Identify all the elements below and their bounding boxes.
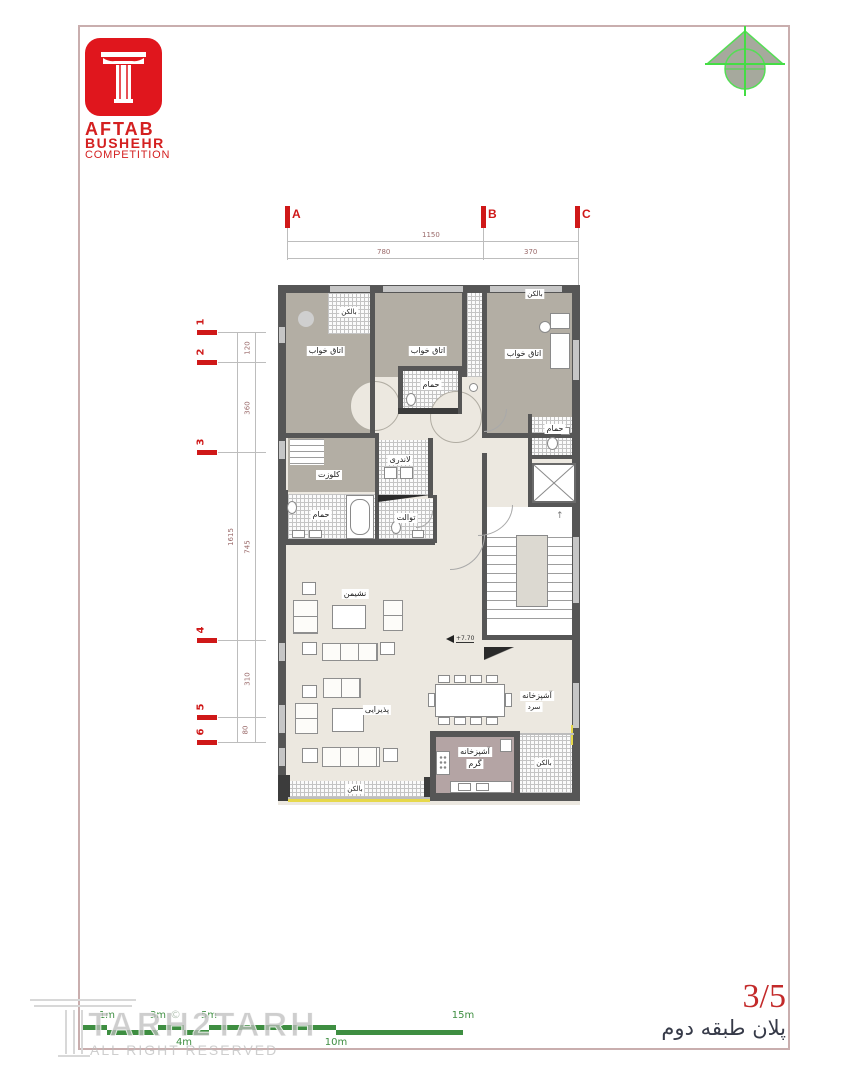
bedroom2-floor	[375, 293, 462, 377]
desk	[550, 313, 570, 329]
dining-chair	[428, 693, 435, 707]
extension-line	[578, 228, 579, 290]
door-arc	[450, 535, 485, 570]
dim-top-bc: 370	[524, 248, 537, 256]
wall	[398, 366, 403, 411]
wall	[375, 433, 379, 543]
side-table	[302, 685, 317, 698]
window	[330, 286, 370, 292]
balcony-accent	[288, 799, 430, 802]
toilet-fixture	[547, 437, 558, 450]
room-label-bedroom2: اتاق خواب	[409, 346, 447, 356]
side-table	[302, 642, 317, 655]
dim-left-seg-1: 120	[244, 341, 252, 354]
extension-line	[287, 228, 288, 260]
stair-up-arrow: ↑	[556, 511, 564, 521]
grid-row-label-5: 5	[197, 704, 205, 711]
chair	[539, 321, 551, 333]
wall	[282, 539, 435, 545]
side-table	[380, 642, 395, 655]
window	[573, 683, 579, 728]
window	[279, 748, 285, 766]
armchair	[293, 600, 318, 634]
dim-line-top-total	[287, 241, 579, 242]
grid-row-tick-4	[197, 638, 217, 643]
hall-arc	[430, 391, 482, 443]
extension-line	[218, 742, 266, 743]
kitchen-sink	[476, 783, 489, 791]
balcony-rail	[520, 733, 574, 735]
sofa	[323, 678, 361, 698]
window	[383, 286, 463, 292]
wall	[528, 414, 532, 459]
room-label-living: نشیمن	[342, 589, 369, 599]
room-label-bath-mid: حمام	[421, 380, 442, 390]
coffee-table	[332, 708, 364, 732]
dining-chair	[470, 717, 482, 725]
room-label-kitchen-cold-1: آشپزخانه	[520, 691, 554, 701]
level-marker: +7.70	[446, 628, 474, 647]
side-table	[302, 582, 316, 595]
stove-burners	[439, 755, 447, 771]
dim-top-total: 1150	[422, 231, 440, 239]
north-arrow-icon	[703, 24, 789, 102]
wall	[514, 731, 520, 801]
wall	[433, 495, 437, 543]
wall	[482, 635, 580, 640]
window	[279, 643, 285, 661]
dining-chair	[438, 717, 450, 725]
toilet-fixture	[287, 501, 297, 514]
window	[573, 537, 579, 603]
washer-fixture	[384, 467, 397, 479]
room-label-balcony-br: بالکن	[534, 758, 553, 768]
extension-line	[218, 332, 266, 333]
room-label-bedroom3: اتاق خواب	[505, 349, 543, 359]
dim-line-left-total	[237, 332, 238, 742]
dining-chair	[505, 693, 512, 707]
dining-table	[435, 684, 505, 717]
room-label-kitchen-warm-2: گرم	[466, 759, 483, 769]
wall	[398, 366, 460, 371]
wall	[282, 490, 288, 542]
sink-fixture	[469, 383, 478, 392]
wall-bottom	[430, 793, 580, 801]
logo-column-icon	[85, 38, 162, 116]
wall	[430, 731, 520, 737]
room-label-bath-master: حمام	[311, 510, 332, 520]
dim-left-seg-5: 80	[241, 726, 249, 735]
grid-row-label-4: 4	[197, 627, 205, 634]
extension-line	[218, 640, 266, 641]
grid-row-label-1: 1	[197, 319, 205, 326]
light-shaft-floor	[467, 293, 482, 377]
elevator-shaft	[532, 463, 576, 503]
threshold-wedge	[484, 647, 514, 660]
room-label-toilet: توالت	[395, 513, 418, 523]
window	[279, 441, 285, 459]
dim-left-seg-3: 745	[244, 540, 252, 553]
grid-row-label-3: 3	[197, 439, 205, 446]
grid-col-tick-b	[481, 206, 486, 228]
dim-line-top-segments	[287, 258, 579, 259]
side-table	[383, 748, 398, 762]
room-label-closet: کلوزت	[316, 470, 342, 480]
grid-row-tick-6	[197, 740, 217, 745]
dim-line-left-segments	[255, 332, 256, 742]
grid-row-label-6: 6	[197, 729, 205, 736]
grid-col-tick-a	[285, 206, 290, 228]
wall	[370, 293, 375, 437]
logo: AFTAB BUSHEHR COMPETITION	[85, 38, 205, 168]
sink-fixture	[412, 530, 424, 538]
drawing-sheet: AFTAB BUSHEHR COMPETITION A B C 1150 780…	[0, 0, 864, 1080]
wall	[286, 433, 375, 438]
room-label-balcony-tl: بالکن	[339, 307, 358, 317]
grid-row-tick-3	[197, 450, 217, 455]
armchair	[383, 600, 403, 631]
dim-left-seg-2: 360	[244, 401, 252, 414]
desk	[550, 333, 570, 369]
extension-line	[218, 452, 266, 453]
grid-col-label-c: C	[582, 207, 591, 221]
bathtub-inner	[350, 499, 370, 535]
stair-landing	[516, 535, 548, 607]
dining-chair	[486, 675, 498, 683]
dining-chair	[454, 675, 466, 683]
level-value: +7.70	[456, 635, 474, 643]
armchair	[295, 703, 318, 734]
threshold-wedge	[378, 495, 430, 502]
toilet-fixture	[406, 393, 416, 406]
grid-row-label-2: 2	[197, 349, 205, 356]
washer-fixture	[400, 467, 413, 479]
logo-subtitle2: COMPETITION	[85, 149, 170, 161]
dining-chair	[470, 675, 482, 683]
table-round	[298, 311, 314, 327]
coffee-table	[332, 605, 366, 629]
grid-col-label-a: A	[292, 207, 301, 221]
room-label-balcony-tr: بالکن	[525, 289, 544, 299]
wall	[398, 408, 460, 414]
sink-fixture	[292, 530, 305, 538]
wall	[528, 455, 580, 459]
grid-col-label-b: B	[488, 207, 497, 221]
sofa	[322, 643, 378, 661]
grid-row-tick-5	[197, 715, 217, 720]
window-accent	[571, 725, 573, 745]
room-label-reception: پذیرایی	[363, 705, 391, 715]
sofa	[322, 747, 380, 767]
fridge	[500, 739, 512, 752]
side-table	[302, 748, 318, 763]
grid-col-tick-c	[575, 206, 580, 228]
window	[279, 705, 285, 733]
room-label-bedroom1: اتاق خواب	[307, 346, 345, 356]
kitchen-sink	[458, 783, 471, 791]
hall-arc	[350, 381, 400, 431]
room-label-balcony-bottom: بالکن	[345, 784, 364, 794]
window	[573, 340, 579, 380]
wall	[462, 293, 467, 377]
dim-left-total: 1615	[227, 528, 235, 546]
grid-row-tick-1	[197, 330, 217, 335]
dining-chair	[454, 717, 466, 725]
dining-chair	[438, 675, 450, 683]
sink-fixture	[309, 530, 322, 538]
closet-shelves	[290, 439, 324, 465]
room-label-bath-right: حمام	[545, 424, 566, 434]
wall	[428, 438, 433, 498]
dining-chair	[486, 717, 498, 725]
window	[279, 327, 285, 343]
extension-line	[483, 228, 484, 260]
dim-top-ab: 780	[377, 248, 390, 256]
grid-row-tick-2	[197, 360, 217, 365]
room-label-kitchen-warm-1: آشپزخانه	[458, 747, 492, 757]
sheet-number: 3/5	[743, 980, 786, 1014]
sheet-title: پلان طبقه دوم	[661, 1014, 786, 1042]
floor-plan: ↑	[278, 285, 580, 805]
room-label-kitchen-cold-2: سرد	[526, 702, 543, 712]
dim-left-seg-4: 310	[244, 672, 252, 685]
extension-line	[218, 717, 266, 718]
room-label-laundry: لاندری	[387, 455, 412, 465]
extension-line	[218, 362, 266, 363]
